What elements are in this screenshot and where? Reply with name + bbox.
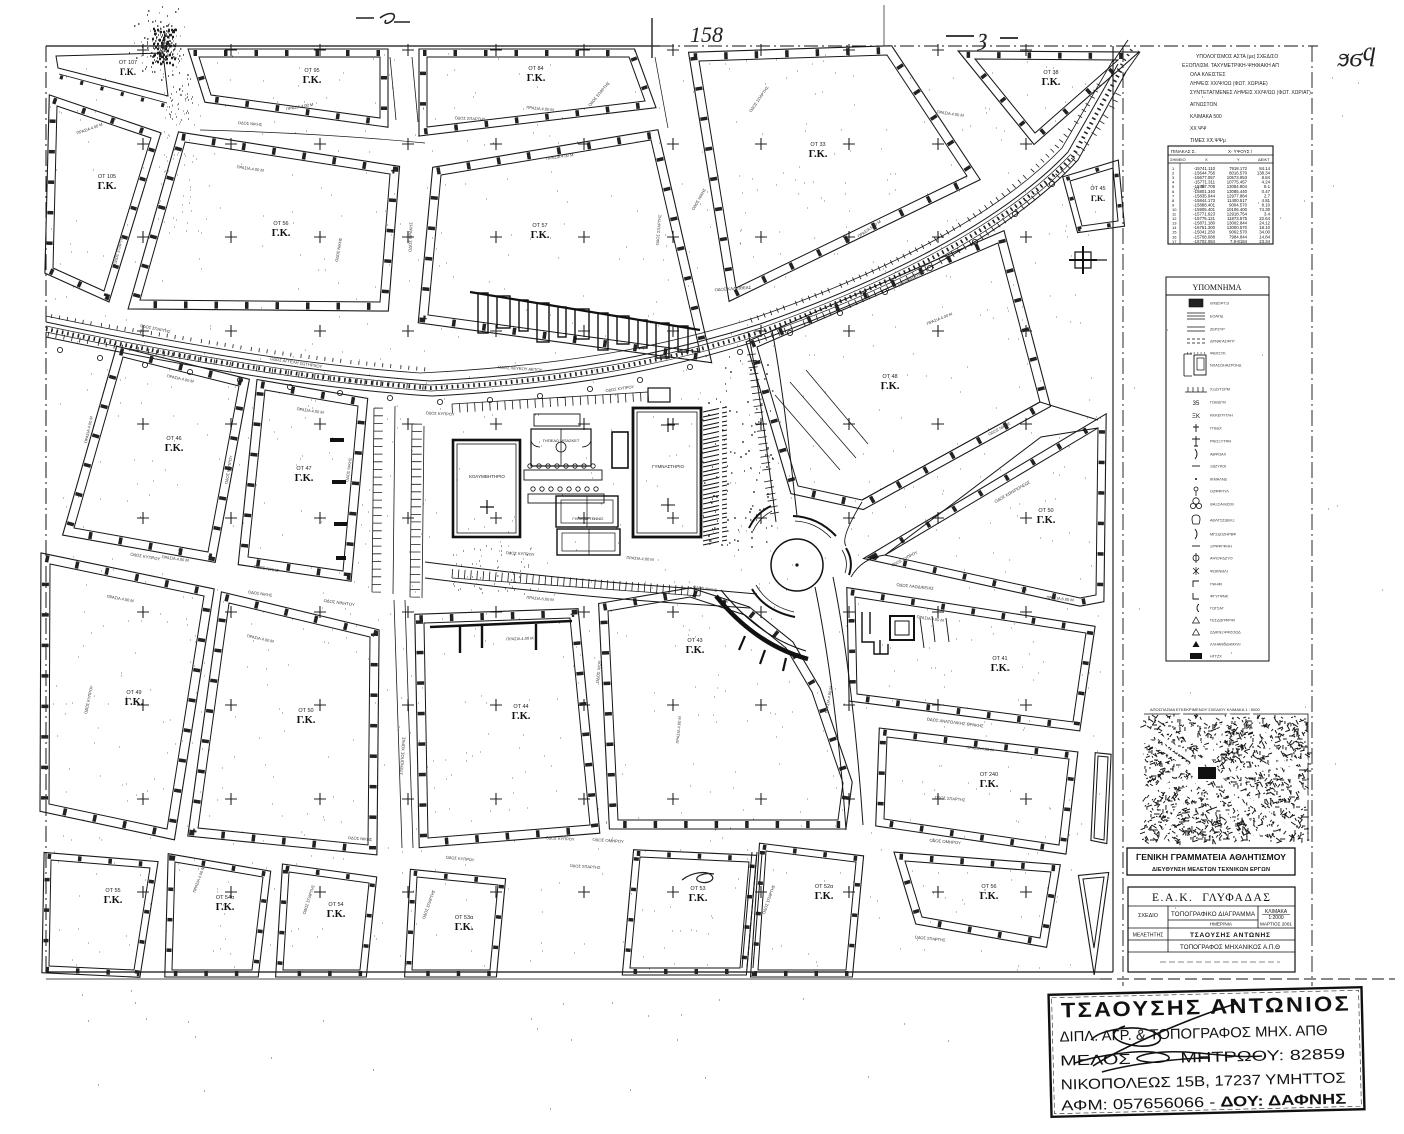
svg-text:ΔΕΙΚΤ: ΔΕΙΚΤ [1258,157,1270,162]
svg-text:Γ.Κ.: Γ.Κ. [1042,77,1061,88]
svg-text:ΟΤ 54: ΟΤ 54 [328,902,343,908]
svg-text:ΠΡΑΣΙΑ 4.00 Μ: ΠΡΑΣΙΑ 4.00 Μ [506,636,533,642]
svg-text:Γ.Κ.: Γ.Κ. [272,228,291,239]
svg-text:17: 17 [1172,239,1177,244]
svg-text:Γ.Κ.: Γ.Κ. [991,663,1010,674]
svg-text:ΟΤ 105: ΟΤ 105 [98,174,116,180]
svg-text:ΞΚ: ΞΚ [1192,414,1200,420]
svg-text:ΛΗΨΕΙΣ ΧΧ/Ψ/ΩΩ (ΦΩΤ. ΧΩΡ/ΑΕ): ΛΗΨΕΙΣ ΧΧ/Ψ/ΩΩ (ΦΩΤ. ΧΩΡ/ΑΕ) [1190,81,1268,87]
svg-text:ΟΔΟΣ ΝΙΚΗΣ: ΟΔΟΣ ΝΙΚΗΣ [690,187,707,211]
svg-text:ΠΡΑΣΙΑ 4.00 Μ: ΠΡΑΣΙΑ 4.00 Μ [926,311,953,326]
svg-text:ΓΓΒΔΧ: ΓΓΒΔΧ [1210,427,1222,431]
svg-text:ΚΛΙΜΑΚΑ 500: ΚΛΙΜΑΚΑ 500 [1190,114,1222,120]
svg-text:ΣΥΝΤΕΤΑΓΜΕΝΕΣ ΛΗΨΕΙΣ ΧΧ/Ψ/ΩΩ: ΣΥΝΤΕΤΑΓΜΕΝΕΣ ΛΗΨΕΙΣ ΧΧ/Ψ/ΩΩ (ΦΩΤ. ΧΩΡ/Α… [1190,90,1311,96]
svg-text:ΑΠΟΣΠΑΣΜΑ ΕΓΚΕΚΡΙΜΕΝΟΥ ΣΧΕΔΙΟΥ: ΑΠΟΣΠΑΣΜΑ ΕΓΚΕΚΡΙΜΕΝΟΥ ΣΧΕΔΙΟΥ ΚΛΙΜΑΚΑ 1… [1150,707,1260,712]
svg-text:ΑΓΝΩΣΤΟΝ: ΑΓΝΩΣΤΟΝ [1190,102,1217,108]
svg-text:ΜΑΡΤΙΟΣ 2001: ΜΑΡΤΙΟΣ 2001 [1260,922,1292,927]
svg-text:Υ: Υ [1237,157,1240,162]
svg-text:ΠΡΑΣΙΑ 6.00 Μ: ΠΡΑΣΙΑ 6.00 Μ [526,595,554,602]
svg-text:ΠΡΑΣΙΑ 4.00 Μ: ΠΡΑΣΙΑ 4.00 Μ [675,716,682,744]
svg-text:ΠΡΑΣΙΑ 4.00 Μ: ΠΡΑΣΙΑ 4.00 Μ [161,554,189,563]
svg-text:ΠΡΑΣΙΑ 4.00 Μ: ΠΡΑΣΙΑ 4.00 Μ [526,105,554,112]
svg-text:ΓΗΠΕΔΑ ΤΕΝΝΙΣ: ΓΗΠΕΔΑ ΤΕΝΝΙΣ [572,516,604,521]
svg-text:ΟΔΟΣ ΣΠΑΡΤΗΣ: ΟΔΟΣ ΣΠΑΡΤΗΣ [570,863,602,870]
svg-text:ΟΤ 49: ΟΤ 49 [126,690,141,696]
svg-text:Γ.Κ.: Γ.Κ. [881,381,900,392]
svg-text:-15702.084: -15702.084 [1193,239,1215,244]
svg-text:ΟΔΟΣ ΚΥΠΡΟΥ: ΟΔΟΣ ΚΥΠΡΟΥ [83,685,94,715]
svg-text:ΟΤ 38: ΟΤ 38 [1043,70,1058,76]
svg-text:ΠΡΑΣΙΑ 4.00 Μ: ΠΡΑΣΙΑ 4.00 Μ [236,164,264,173]
svg-text:ΟΔΟΣ ΣΠΑΡΤΗΣ: ΟΔΟΣ ΣΠΑΡΤΗΣ [140,323,172,334]
svg-text:ΟΤ 84: ΟΤ 84 [528,66,543,72]
svg-text:Χ- ΥΨΟΥΣ /: Χ- ΥΨΟΥΣ / [1228,149,1253,154]
svg-text:ΤΣΑΟΥΣΗΣ ΑΝΤΩΝΗΣ: ΤΣΑΟΥΣΗΣ ΑΝΤΩΝΗΣ [1190,932,1270,939]
svg-text:Γ.Κ.: Γ.Κ. [809,149,828,160]
svg-text:ΟΤ 55: ΟΤ 55 [105,888,120,894]
svg-text:ΟΤ 56: ΟΤ 56 [981,884,996,890]
svg-text:ΘΑΞΣΑΛΘΣΜ: ΘΑΞΣΑΛΘΣΜ [1210,503,1234,507]
svg-text:7.8-8184: 7.8-8184 [1230,239,1248,244]
svg-text:ΔΡΝΑΓΑΣΦΓΡ: ΔΡΝΑΓΑΣΦΓΡ [1210,340,1235,344]
svg-text:ΟΔΟΣ ΣΠΑΡΤΗΣ: ΟΔΟΣ ΣΠΑΡΤΗΣ [421,889,436,920]
svg-text:ΠΡΑΣΙΑ 4.00 Μ: ΠΡΑΣΙΑ 4.00 Μ [106,594,134,604]
svg-text:ΤΙΜΕΣ ΧΧ.ΨΨμ: ΤΙΜΕΣ ΧΧ.ΨΨμ [1190,138,1226,144]
svg-text:Γ.Κ.: Γ.Κ. [980,779,999,790]
svg-text:ΤΟΠΟΓΡΑΦΟΣ ΜΗΧΑΝΙΚΟΣ Α.Π.Θ: ΤΟΠΟΓΡΑΦΟΣ ΜΗΧΑΝΙΚΟΣ Α.Π.Θ [1180,944,1280,951]
svg-text:ΟΤ 240: ΟΤ 240 [980,772,998,778]
svg-text:Γ.Κ.: Γ.Κ. [104,895,123,906]
svg-text:Γ.Κ.: Γ.Κ. [689,893,708,904]
svg-text:ΟΔΟΣ ΚΥΠΡΟΥ: ΟΔΟΣ ΚΥΠΡΟΥ [426,410,455,417]
svg-text:ΟΔΟΣ ΝΙΚΗΣ: ΟΔΟΣ ΝΙΚΗΣ [248,589,273,597]
svg-text:ΓΕΣΔΩΠΦΡΨΙ: ΓΕΣΔΩΠΦΡΨΙ [1210,619,1235,623]
svg-text:ΟΔΟΣ ΑΝΑΤΟΛΙΚΗΣ ΘΡΑΚΗΣ: ΟΔΟΣ ΑΝΑΤΟΛΙΚΗΣ ΘΡΑΚΗΣ [927,717,985,729]
svg-text:ΜΕΛΕΤΗΤΗΣ: ΜΕΛΕΤΗΤΗΣ [1133,933,1164,939]
svg-text:ΟΤ 33: ΟΤ 33 [810,142,825,148]
svg-text:ΟΤ 45: ΟΤ 45 [1090,186,1105,192]
svg-text:ΟΤ 56: ΟΤ 56 [273,221,288,227]
svg-text:ΠΡΑΣΙΑ 4.00 Μ: ΠΡΑΣΙΑ 4.00 Μ [76,122,103,136]
svg-text:ΙΚΜΑΛΝΔ: ΙΚΜΑΛΝΔ [1210,478,1228,482]
svg-text:ΟΤ 107: ΟΤ 107 [119,60,137,66]
svg-text:ΥΠΟΜΝΗΜΑ: ΥΠΟΜΝΗΜΑ [1193,283,1242,292]
svg-text:ΠΡΑΣΙΑ 4.00 Μ: ΠΡΑΣΙΑ 4.00 Μ [246,633,274,644]
svg-text:Γ.Κ.: Γ.Κ. [327,909,346,920]
svg-text:ΟΔΟΣ ΣΠΑΡΤΗΣ: ΟΔΟΣ ΣΠΑΡΤΗΣ [748,85,770,114]
svg-text:ΠΡΑΣΙΑ 4.00 Μ: ΠΡΑΣΙΑ 4.00 Μ [824,686,834,714]
svg-text:ΓΩΘΔΓΜ: ΓΩΘΔΓΜ [1210,401,1226,405]
svg-text:ΛΛΗΑΝΘΔΗΜΧΛΙ: ΛΛΗΑΝΘΔΗΜΧΛΙ [1210,643,1241,647]
svg-text:ΟΔΟΣ ΝΙΚΗΤΟΥ: ΟΔΟΣ ΝΙΚΗΤΟΥ [323,598,355,607]
svg-text:ΓΕΝΙΚΗ ΓΡΑΜΜΑΤΕΙΑ ΑΘΛΗΤΙΣΜΟΥ: ΓΕΝΙΚΗ ΓΡΑΜΜΑΤΕΙΑ ΑΘΛΗΤΙΣΜΟΥ [1136,852,1286,862]
svg-text:ΤΟΠΟΓΡΑΦΙΚΟ ΔΙΑΓΡΑΜΜΑ: ΤΟΠΟΓΡΑΦΙΚΟ ΔΙΑΓΡΑΜΜΑ [1171,911,1256,918]
svg-text:ΚΚΚΕΠΥΤΛΗ: ΚΚΚΕΠΥΤΛΗ [1210,414,1233,418]
svg-text:ȝ: ȝ [976,25,987,51]
svg-text:ΘΧΒΣΦΤΞΙ: ΘΧΒΣΦΤΞΙ [1210,302,1229,306]
svg-text:ΟΔΟΣ ΝΙΚΗΣ: ΟΔΟΣ ΝΙΚΗΣ [334,237,343,262]
svg-text:Γ.Κ.: Γ.Κ. [980,891,999,902]
svg-text:ΠΡΑΣΙΑ 4.00 Μ: ΠΡΑΣΙΑ 4.00 Μ [626,555,654,562]
svg-text:ΜΓΣΔΟΖΗΡΒΦ: ΜΓΣΔΟΖΗΡΒΦ [1210,533,1236,537]
svg-text:Χ: Χ [1205,157,1208,162]
svg-text:ΟΤ 44: ΟΤ 44 [513,704,528,710]
svg-text:ΓΩΓΣΑΓ: ΓΩΓΣΑΓ [1210,607,1224,611]
svg-text:ΟΤ 95: ΟΤ 95 [304,68,319,74]
svg-text:Γ.Κ.: Γ.Κ. [531,230,550,241]
svg-text:Γ.Κ.: Γ.Κ. [455,922,474,933]
svg-text:ΟΔΟΣ ΚΥΠΡΟΥ: ΟΔΟΣ ΚΥΠΡΟΥ [506,550,535,557]
svg-text:ΟΛΑ ΚΛΕΙΣΤΕΣ: ΟΛΑ ΚΛΕΙΣΤΕΣ [1190,72,1226,78]
svg-text:Γ.Κ.: Γ.Κ. [1091,194,1105,203]
svg-text:Γ.Κ.: Γ.Κ. [297,715,316,726]
svg-text:Γ.Κ.: Γ.Κ. [815,891,834,902]
svg-text:ΠΡΑΣΙΑ 4.00 Μ: ΠΡΑΣΙΑ 4.00 Μ [546,152,574,161]
svg-text:ΤΣΑΟΥΣΗΣ ΑΝΤΩΝΙΟΣ: ΤΣΑΟΥΣΗΣ ΑΝΤΩΝΙΟΣ [1061,992,1351,1022]
svg-text:ΟΔΟΣ ΟΜΗΡΟΥ: ΟΔΟΣ ΟΜΗΡΟΥ [929,838,961,846]
svg-text:ΠΙΝΑΚΑΣ Σ.: ΠΙΝΑΚΑΣ Σ. [1171,149,1196,154]
svg-text:ΣΗΜΕΙΟ: ΣΗΜΕΙΟ [1170,157,1186,162]
svg-text:ΠΡΑΣΙΑ 4.00 Μ: ΠΡΑΣΙΑ 4.00 Μ [966,745,994,753]
svg-text:ΟΔΟΣ ΧΙΟΥ: ΟΔΟΣ ΧΙΟΥ [595,660,602,683]
svg-text:1:2000: 1:2000 [1268,915,1284,921]
svg-text:ΝΙΚΟΠΟΛΕΩΣ 15Β, 17237 ΥΜΗΤΤΟΣ: ΝΙΚΟΠΟΛΕΩΣ 15Β, 17237 ΥΜΗΤΤΟΣ [1061,1071,1346,1094]
svg-text:ΓΡΑΜΜΗ ΤΡΑΜ: ΓΡΑΜΜΗ ΤΡΑΜ [897,269,926,289]
svg-text:ΣΤΕΝΩΠΟΣ ΧΩΡΑΣ: ΣΤΕΝΩΠΟΣ ΧΩΡΑΣ [399,736,407,775]
svg-text:ΖΕΡΖΥΡ: ΖΕΡΖΥΡ [1210,328,1225,332]
svg-text:ΟΤ 54α: ΟΤ 54α [216,895,235,901]
svg-text:ΡΝΟΞΥΤΦΗ: ΡΝΟΞΥΤΦΗ [1210,440,1232,444]
svg-text:ΓΨΗΦΙ: ΓΨΗΦΙ [1210,583,1222,587]
svg-text:ΟΔΟΣ ΣΠΑΡΤΗΣ: ΟΔΟΣ ΣΠΑΡΤΗΣ [915,934,947,942]
svg-text:ΟΔΟΣ ΚΥΠΡΟΥ: ΟΔΟΣ ΚΥΠΡΟΥ [546,835,575,842]
svg-text:ΑΒΨΩΑΧ: ΑΒΨΩΑΧ [1210,453,1227,457]
svg-text:ΓΥΜΝΑΣΤΗΡΙΟ: ΓΥΜΝΑΣΤΗΡΙΟ [652,464,685,469]
svg-text:Γ.Κ.: Γ.Κ. [295,473,314,484]
svg-text:ΟΔΟΣ ΚΥΠΡΟΥ: ΟΔΟΣ ΚΥΠΡΟΥ [605,384,635,393]
svg-text:ΟΖΦΦΠΥΛ: ΟΖΦΦΠΥΛ [1210,490,1229,494]
svg-text:ΖΔΙΚΝΞΨΨΖΟΩΔ: ΖΔΙΚΝΞΨΨΖΟΩΔ [1210,631,1241,635]
svg-text:ΟΔΟΣ ΝΙΚΗΣ: ΟΔΟΣ ΝΙΚΗΣ [348,835,373,842]
svg-text:Ε.Α.Κ. ΓΛΥΦΑΔΑΣ: Ε.Α.Κ. ΓΛΥΦΑΔΑΣ [1152,892,1270,904]
svg-text:ΟΔΟΣ ΣΠΑΡΤΗΣ: ΟΔΟΣ ΣΠΑΡΤΗΣ [587,80,611,107]
svg-text:ΟΤ 50: ΟΤ 50 [1038,508,1053,514]
svg-text:ΟΔΟΣ ΣΠΑΡΤΗΣ: ΟΔΟΣ ΣΠΑΡΤΗΣ [935,795,967,803]
svg-text:35: 35 [1193,401,1200,407]
svg-text:Γ.Κ.: Γ.Κ. [125,697,144,708]
svg-text:ΞΒΖΥΚΟΙ: ΞΒΖΥΚΟΙ [1210,465,1226,469]
svg-text:Γ.Κ.: Γ.Κ. [165,443,184,454]
svg-text:Γ.Κ.: Γ.Κ. [120,67,136,77]
svg-text:ΑΨΙΞΨΔΖΥΟ: ΑΨΙΞΨΔΖΥΟ [1210,557,1233,561]
svg-text:ΟΔΟΣ ΚΥΠΡΟΥ: ΟΔΟΣ ΚΥΠΡΟΥ [446,855,476,863]
svg-text:ΟΤ 46: ΟΤ 46 [166,436,181,442]
svg-text:ΟΔΟΣ ΣΠΑΡΤΗΣ: ΟΔΟΣ ΣΠΑΡΤΗΣ [455,115,487,122]
svg-text:ΕΞΟΠΛΙΣΜ. ΤΑΧΥΜΕΤΡΙΚΗ-ΨΗΦΙΑΚΗ: ΕΞΟΠΛΙΣΜ. ΤΑΧΥΜΕΤΡΙΚΗ-ΨΗΦΙΑΚΗ ΑΠ [1182,63,1279,69]
svg-text:ΦΓΥΓΨΝΚ: ΦΓΥΓΨΝΚ [1210,595,1229,599]
svg-text:ΟΔΟΣ ΣΠΑΡΤΗΣ: ΟΔΟΣ ΣΠΑΡΤΗΣ [112,234,125,266]
svg-text:ΟΤ 52α: ΟΤ 52α [815,884,834,890]
svg-text:ΑΘΛΓΣΖΔΒΛΞ: ΑΘΛΓΣΖΔΒΛΞ [1210,519,1235,523]
svg-text:23.34: 23.34 [1259,239,1270,244]
svg-text:ΞΡΨΦΓΦΗΗ: ΞΡΨΦΓΦΗΗ [1210,545,1232,549]
svg-text:ϧϭϥ: ϧϭϥ [1337,43,1376,72]
svg-text:Γ.Κ.: Γ.Κ. [303,75,322,86]
svg-text:ΟΔΟΣ ΣΠΑΡΤΗΣ: ΟΔΟΣ ΣΠΑΡΤΗΣ [655,214,663,246]
svg-text:ΓΗΠΕΔΟ ΜΠΑΣΚΕΤ: ΓΗΠΕΔΟ ΜΠΑΣΚΕΤ [543,438,580,443]
svg-text:Γ.Κ.: Γ.Κ. [98,181,117,192]
svg-text:ΝΧΑΣΩΗΑΖΡΟΗΔ: ΝΧΑΣΩΗΑΖΡΟΗΔ [1210,364,1242,368]
svg-text:Γ.Κ.: Γ.Κ. [1037,515,1056,526]
svg-text:ΟΔΟΣ ΚΩΝ/ΠΟΛΕΩΣ: ΟΔΟΣ ΚΩΝ/ΠΟΛΕΩΣ [993,479,1031,504]
svg-text:ΟΤ 53: ΟΤ 53 [690,886,705,892]
svg-text:ΟΔΟΣ ΛΕΥΚΟΥ ΑΕΤΟΥ: ΟΔΟΣ ΛΕΥΚΟΥ ΑΕΤΟΥ [498,364,543,372]
svg-text:ΨΒΧΣΥΚ: ΨΒΧΣΥΚ [1210,352,1226,356]
svg-text:ΟΤ 53α: ΟΤ 53α [455,915,474,921]
svg-text:ΥΠΟΛΟΓΙΣΜΟΣ ΑΣΤΑ (με) ΣΧΕΔ/ΣΟ: ΥΠΟΛΟΓΙΣΜΟΣ ΑΣΤΑ (με) ΣΧΕΔ/ΣΟ [1196,54,1278,60]
svg-text:ΟΤ 41: ΟΤ 41 [992,656,1007,662]
svg-text:ΟΤ 47: ΟΤ 47 [296,466,311,472]
svg-text:Γ.Κ.: Γ.Κ. [512,711,531,722]
svg-text:ΟΤ 50: ΟΤ 50 [298,708,313,714]
svg-text:ΚΟΛΥΜΒΗΤΗΡΙΟ: ΚΟΛΥΜΒΗΤΗΡΙΟ [469,474,505,479]
svg-text:ΟΤ 48: ΟΤ 48 [882,374,897,380]
svg-text:Γ.Κ.: Γ.Κ. [216,902,235,913]
svg-text:158: 158 [690,22,723,47]
svg-text:Γ.Κ.: Γ.Κ. [686,645,705,656]
svg-text:ΠΡΑΣΙΑ 4.00 Μ: ΠΡΑΣΙΑ 4.00 Μ [936,109,964,118]
svg-text:ΨΩΚΝΘΛΙ: ΨΩΚΝΘΛΙ [1210,570,1228,574]
svg-text:ΔΙΕΥΘΥΝΣΗ ΜΕΛΕΤΩΝ ΤΕΧΝΙΚΩΝ ΕΡΓ: ΔΙΕΥΘΥΝΣΗ ΜΕΛΕΤΩΝ ΤΕΧΝΙΚΩΝ ΕΡΓΩΝ [1152,867,1270,873]
svg-text:ΟΤ 43: ΟΤ 43 [687,638,702,644]
svg-text:ΟΔΟΣ ΚΥΠΡΟΥ: ΟΔΟΣ ΚΥΠΡΟΥ [130,551,161,561]
svg-text:ΟΔΟΣ ΣΠΑΡΤΗΣ: ΟΔΟΣ ΣΠΑΡΤΗΣ [301,884,315,915]
svg-text:ΟΔΟΣ ΛΑΟΔΙΚΕΙΑΣ: ΟΔΟΣ ΛΑΟΔΙΚΕΙΑΣ [896,582,934,591]
svg-text:Γ.Κ.: Γ.Κ. [527,73,546,84]
svg-text:ΠΡΑΣΙΑ 4.00 Μ: ΠΡΑΣΙΑ 4.00 Μ [296,406,324,415]
svg-text:ΧΧ ΨΨ: ΧΧ ΨΨ [1190,126,1206,132]
svg-text:ΟΔΟΣ ΟΜΗΡΟΥ: ΟΔΟΣ ΟΜΗΡΟΥ [592,837,624,844]
svg-text:ΗΓΓΖΧ: ΗΓΓΖΧ [1210,655,1222,659]
svg-text:ΕΟΑΠΔ: ΕΟΑΠΔ [1210,315,1224,319]
svg-text:ΟΔΟΣ ΘΡΑΚΗΣ: ΟΔΟΣ ΘΡΑΚΗΣ [407,222,413,252]
svg-text:ΧΞΔΥΓΣΡΜ: ΧΞΔΥΓΣΡΜ [1210,388,1230,392]
svg-text:ΟΤ 57: ΟΤ 57 [532,223,547,229]
svg-text:ΠΡΑΣΙΑ 4.00 Μ: ΠΡΑΣΙΑ 4.00 Μ [192,866,206,893]
svg-text:ΟΔΟΣ ΚΑΛΛΙΘΕΑΣ: ΟΔΟΣ ΚΑΛΛΙΘΕΑΣ [714,285,751,293]
svg-text:ΟΔΟΣ ΝΙΚΗΣ: ΟΔΟΣ ΝΙΚΗΣ [253,564,279,573]
svg-text:ΟΔΟΣ ΝΙΚΗΣ: ΟΔΟΣ ΝΙΚΗΣ [238,120,263,127]
svg-text:ΣΧΕΔΙΟ: ΣΧΕΔΙΟ [1138,913,1158,919]
svg-text:ΗΜΕΡ/ΝΙΑ: ΗΜΕΡ/ΝΙΑ [1210,922,1233,927]
